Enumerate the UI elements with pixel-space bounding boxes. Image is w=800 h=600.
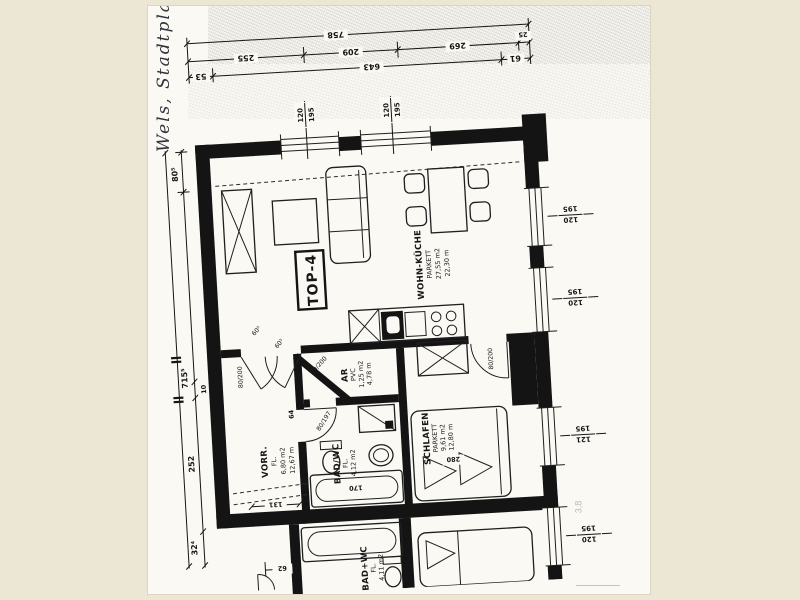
- stove-icon: [431, 311, 457, 336]
- dim-label: 209: [342, 47, 360, 57]
- roof-slope-line: [215, 162, 523, 187]
- svg-text:121: 121: [576, 435, 591, 444]
- dim-label: 10: [200, 384, 209, 394]
- shower-icon: [358, 404, 395, 432]
- dim-label: 280: [446, 455, 460, 464]
- dim-label: 170: [348, 483, 362, 492]
- dim-label: 32⁴: [190, 540, 200, 556]
- roof-slope-line: [233, 484, 307, 494]
- walls: [194, 113, 572, 594]
- dim-label: 25: [518, 30, 528, 39]
- floor-plan-svg: 758 255 209 269 25 53 643 61: [148, 6, 650, 594]
- dim-label: 269: [449, 41, 467, 51]
- svg-text:120: 120: [296, 108, 305, 123]
- screenshot-root: { "colors": {"ink": "#161616", "paper": …: [0, 0, 800, 600]
- bed-icon: [418, 527, 535, 587]
- svg-text:4,78 m: 4,78 m: [365, 362, 374, 385]
- window-dim-label: 120 195: [575, 523, 602, 545]
- table-icon: [272, 199, 318, 245]
- svg-text:195: 195: [567, 287, 582, 296]
- svg-text:195: 195: [575, 424, 590, 433]
- door-leaf-label: 60⁵: [273, 337, 285, 350]
- svg-text:22,30 m: 22,30 m: [442, 249, 452, 276]
- svg-text:PARKETT: PARKETT: [424, 250, 434, 279]
- window-dim-label: 120 195: [557, 204, 584, 226]
- window-dim-label: 120 195: [294, 101, 317, 128]
- sofa-icon: [325, 166, 370, 264]
- door-dim-label: 80/197: [316, 410, 333, 432]
- svg-text:4,11 m2: 4,11 m2: [377, 554, 387, 581]
- unit-label-box: TOP-4: [295, 250, 326, 310]
- svg-text:120: 120: [568, 298, 583, 307]
- dim-label: 131: [268, 500, 282, 509]
- dining-set-icon: [404, 166, 492, 235]
- dim-label: 80⁵: [170, 167, 180, 183]
- svg-text:FL.: FL.: [270, 456, 279, 466]
- dim-label: 53: [195, 72, 207, 82]
- unit-label: TOP-4: [303, 253, 322, 306]
- wardrobe-icon: [222, 189, 257, 274]
- svg-text:195: 195: [307, 107, 316, 122]
- washbasin-icon: [368, 444, 393, 466]
- window-dim-label: 120 195: [562, 287, 589, 309]
- room-label-wohn-kueche: WOHN-KÜCHE PARKETT 27,55 m2 22,30 m: [412, 228, 453, 300]
- door-dim-label: 80/200: [487, 348, 495, 370]
- window-dim-label: 121 195: [570, 423, 597, 445]
- svg-text:12,67 m: 12,67 m: [287, 447, 297, 474]
- neighbour-unit: BAD+WC FL. 4,11 m2: [301, 515, 534, 594]
- living-room-furniture: [221, 159, 498, 351]
- svg-text:195: 195: [393, 102, 402, 117]
- dim-label: 64: [287, 409, 296, 419]
- svg-text:120: 120: [563, 215, 578, 224]
- dim-label: 61: [509, 54, 521, 64]
- dim-label: 252: [187, 456, 197, 473]
- room-label-neighbour-bad-wc: BAD+WC FL. 4,11 m2: [359, 545, 387, 591]
- dim-label: 62: [278, 564, 287, 573]
- dim-label-total: 758: [327, 30, 345, 40]
- kitchen-counter-icon: [349, 304, 466, 344]
- bathtub-icon: [301, 522, 403, 562]
- scan-scratch-mark: [576, 585, 620, 586]
- door-leaf-label: 60⁵: [251, 325, 263, 338]
- dim-label: 715⁵: [180, 368, 190, 389]
- door-dim-label: 80/200: [237, 366, 245, 388]
- room-label-ar: AR PVC 1,25 m2 4,78 m: [340, 360, 375, 389]
- svg-text:120: 120: [582, 534, 597, 543]
- doors: 80/200 60⁵ 60⁵ 80/200 80/200 80/197: [234, 310, 520, 591]
- window-dim-label: 120 195: [379, 96, 402, 123]
- dim-label: 255: [237, 53, 255, 63]
- svg-text:12,80 m: 12,80 m: [446, 423, 456, 450]
- svg-text:6,80 m2: 6,80 m2: [278, 447, 288, 474]
- dimension-chain-top: 758 255 209 269 25 53 643 61: [184, 18, 534, 84]
- toilet-icon: [383, 556, 403, 587]
- dim-label: 643: [363, 62, 380, 72]
- svg-text:120: 120: [382, 103, 391, 118]
- svg-text:195: 195: [581, 523, 596, 532]
- room-label-vorraum: VORR. FL. 6,80 m2 12,67 m: [259, 444, 297, 478]
- scanned-floorplan-page: Wels, Stadtpla 3,8 758 255 209 269 25: [148, 6, 650, 594]
- svg-text:195: 195: [562, 204, 577, 213]
- svg-text:4,12 m2: 4,12 m2: [349, 449, 359, 476]
- kitchen-basin-icon: [405, 311, 426, 336]
- floor-plan-drawing: 758 255 209 269 25 53 643 61: [148, 6, 650, 594]
